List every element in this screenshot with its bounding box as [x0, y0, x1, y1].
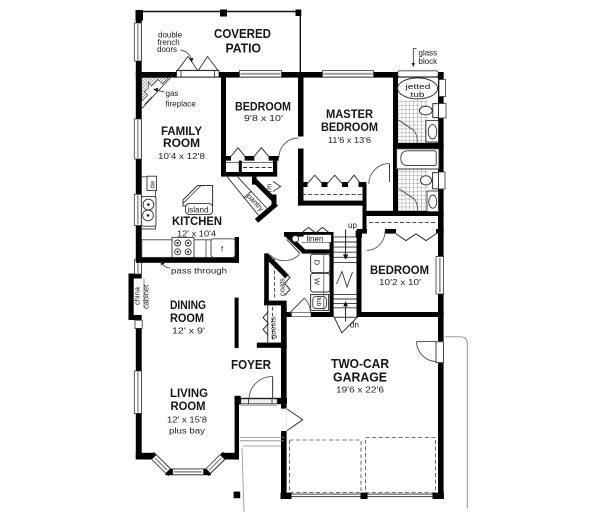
- svg-text:plus bay: plus bay: [169, 426, 206, 436]
- svg-text:island: island: [188, 206, 209, 215]
- svg-text:9'8 x 10': 9'8 x 10': [244, 113, 284, 123]
- svg-text:dw: dw: [151, 180, 157, 188]
- svg-text:FAMILY: FAMILY: [161, 126, 202, 138]
- svg-text:block: block: [419, 57, 439, 66]
- svg-text:BEDROOM: BEDROOM: [235, 102, 291, 114]
- svg-text:brm: brm: [267, 184, 274, 196]
- svg-text:dn: dn: [350, 321, 359, 330]
- svg-text:DINING: DINING: [170, 300, 206, 312]
- svg-text:guests: guests: [269, 317, 278, 339]
- svg-text:tub: tub: [411, 90, 425, 99]
- svg-text:linen: linen: [307, 234, 324, 243]
- svg-text:PATIO: PATIO: [226, 41, 262, 56]
- svg-text:12' x 10'4: 12' x 10'4: [177, 229, 216, 239]
- svg-text:BEDROOM: BEDROOM: [321, 122, 378, 134]
- svg-text:KITCHEN: KITCHEN: [172, 216, 222, 228]
- svg-text:GARAGE: GARAGE: [333, 371, 387, 385]
- svg-text:ROOM: ROOM: [170, 313, 204, 325]
- svg-text:COVERED: COVERED: [214, 26, 271, 41]
- svg-text:fireplace: fireplace: [166, 100, 197, 109]
- svg-text:ROOM: ROOM: [163, 138, 200, 150]
- svg-text:D: D: [313, 260, 322, 266]
- svg-text:doors: doors: [157, 45, 177, 54]
- svg-text:19'6 x 22'6: 19'6 x 22'6: [336, 385, 384, 395]
- svg-text:up: up: [348, 221, 357, 230]
- svg-text:china: china: [133, 286, 142, 305]
- svg-text:cabinet: cabinet: [142, 284, 151, 309]
- svg-text:pass through: pass through: [171, 266, 227, 276]
- svg-text:MASTER: MASTER: [326, 109, 374, 121]
- svg-text:12' x 9': 12' x 9': [172, 326, 206, 336]
- svg-text:TWO-CAR: TWO-CAR: [331, 357, 389, 371]
- svg-text:10'4 x 12'8: 10'4 x 12'8: [158, 151, 205, 161]
- svg-text:10'2 x 10': 10'2 x 10': [379, 277, 421, 287]
- svg-text:W: W: [313, 278, 322, 286]
- svg-text:gas: gas: [166, 89, 179, 98]
- svg-text:12' x 15'8: 12' x 15'8: [167, 415, 207, 425]
- svg-text:tub: tub: [315, 297, 322, 306]
- svg-text:FOYER: FOYER: [231, 358, 271, 372]
- svg-text:coats: coats: [278, 278, 287, 296]
- svg-text:11'6 x 13'6: 11'6 x 13'6: [328, 135, 371, 145]
- svg-text:ROOM: ROOM: [171, 401, 206, 413]
- svg-text:LIVING: LIVING: [170, 388, 208, 400]
- svg-text:BEDROOM: BEDROOM: [370, 265, 429, 277]
